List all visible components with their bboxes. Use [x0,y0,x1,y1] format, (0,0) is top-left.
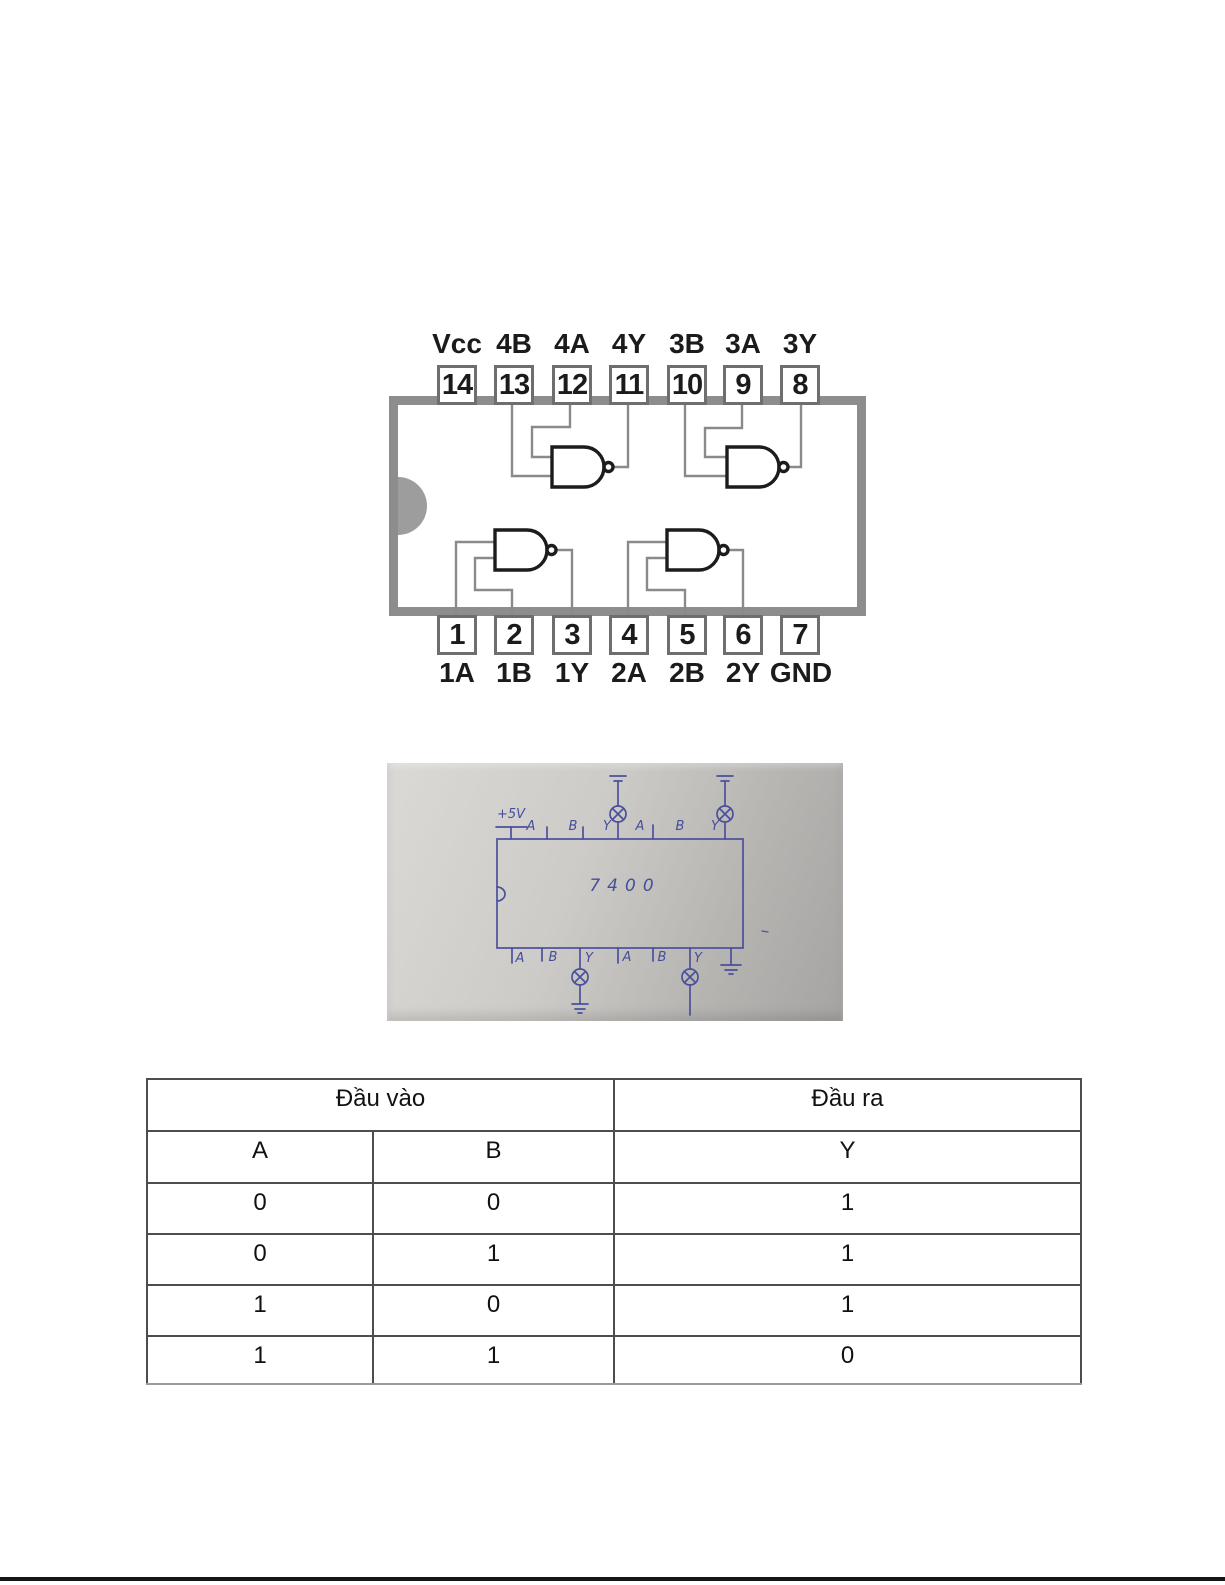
page-bottom-rule [0,1577,1225,1581]
table-cell: 1 [373,1336,614,1384]
sketch-pin-label: B [569,820,578,834]
sketch-pin-label: B [549,951,558,965]
pin-box: 6 [723,615,763,655]
table-row: 0 1 1 [147,1234,1081,1285]
table-cell: 0 [147,1234,373,1285]
sketch-pin-label: A [636,820,645,834]
table-cell: 1 [147,1336,373,1384]
table-header-output: Đầu ra [614,1079,1081,1131]
sketch-pin-label: B [658,951,667,965]
pin-box: 14 [437,365,477,405]
table-cell: 1 [147,1285,373,1336]
table-cell: 1 [614,1285,1081,1336]
pin-box: 8 [780,365,820,405]
nand-gate-icon [667,530,719,570]
sketch-pin-label: A [623,951,632,965]
nand-gate-icon [495,530,547,570]
sketch-pin-label: B [676,820,685,834]
hand-drawn-circuit-photo: +5V A B Y A B Y 7400 A B Y A B Y [387,763,843,1021]
column-header-b: B [373,1131,614,1183]
pin-box: 13 [494,365,534,405]
table-row: 0 0 1 [147,1183,1081,1234]
sketch-pin-label: Y [711,820,719,834]
table-cell: 1 [373,1234,614,1285]
column-header-y: Y [614,1131,1081,1183]
column-header-a: A [147,1131,373,1183]
sketch-pin-label: Y [694,952,702,966]
pin-box: 10 [667,365,707,405]
truth-table: Đầu vào Đầu ra A B Y 0 0 1 0 1 1 1 0 1 [146,1078,1082,1385]
pin-box: 5 [667,615,707,655]
ground-icon [717,776,733,781]
stray-mark [762,931,768,932]
sketch-pin-label: Y [603,820,611,834]
sketch-pin-label: A [516,952,525,966]
ground-icon [721,948,741,974]
chip-notch-mark [497,887,505,901]
pin-box: 9 [723,365,763,405]
sketch-pin-label: A [527,820,536,834]
table-cell: 1 [614,1234,1081,1285]
table-cell: 1 [614,1183,1081,1234]
ic-pinout-diagram: Vcc 4B 4A 4Y 3B 3A 3Y 14 13 12 11 10 9 8… [385,328,867,690]
pin-label: 3Y [755,329,845,359]
table-cell: 0 [147,1183,373,1234]
lamp-icon [610,782,626,839]
nand-gate-icon [727,447,779,487]
table-header-input: Đầu vào [147,1079,614,1131]
table-cell: 0 [373,1183,614,1234]
sketch-pin-label: Y [585,952,593,966]
power-icon [496,827,527,839]
nand-bubble-icon [547,546,556,555]
nand-bubble-icon [779,463,788,472]
ground-icon [572,1004,588,1013]
pin-box: 1 [437,615,477,655]
pin-ticks-bottom [512,948,653,963]
chip-label: 7400 [589,876,660,896]
nand-bubble-icon [604,463,613,472]
pin-label: GND [756,658,846,688]
nand-bubble-icon [719,546,728,555]
table-cell: 0 [373,1285,614,1336]
pin-box: 12 [552,365,592,405]
nand-gate-icon [552,447,604,487]
table-row: 1 0 1 [147,1285,1081,1336]
table-cell: 0 [614,1336,1081,1384]
supply-label: +5V [497,808,525,822]
lamp-icon [717,782,733,839]
pin-box: 2 [494,615,534,655]
page: { "page": { "background": "#ffffff", "bo… [0,0,1225,1585]
ground-icon [610,776,626,781]
pin-box: 4 [609,615,649,655]
pin-box: 11 [609,365,649,405]
pin-box: 3 [552,615,592,655]
pin-box: 7 [780,615,820,655]
table-row: 1 1 0 [147,1336,1081,1384]
